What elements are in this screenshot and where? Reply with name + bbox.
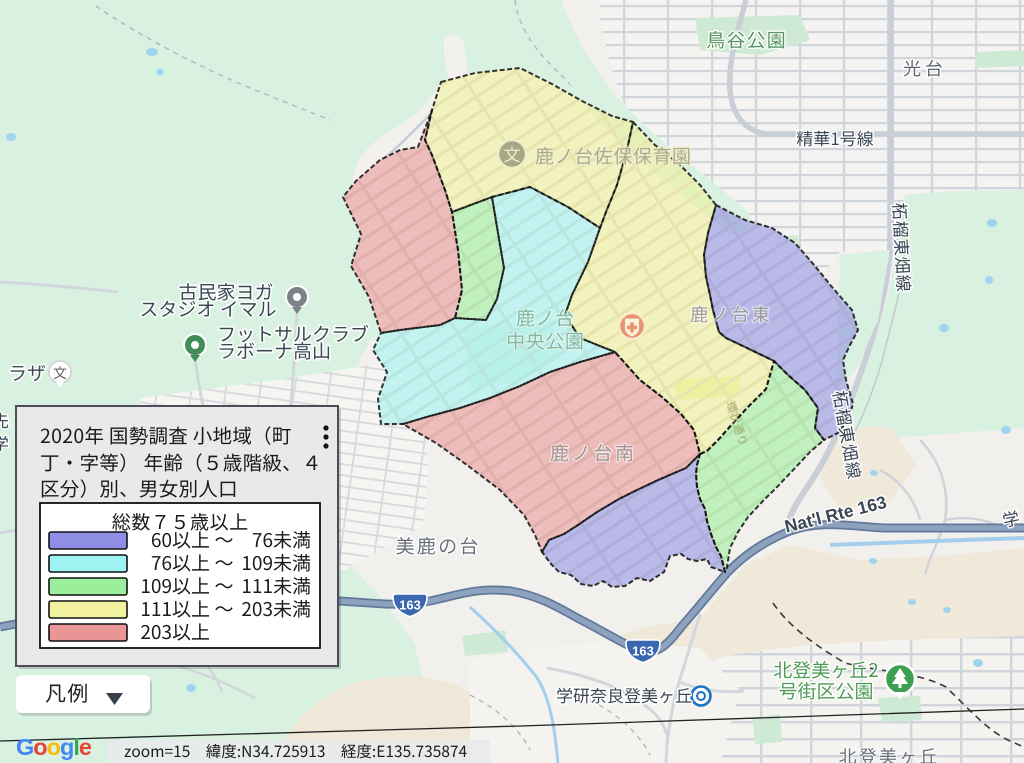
svg-text:163: 163 <box>632 644 654 659</box>
svg-text:163: 163 <box>399 598 421 613</box>
svg-text:Google: Google <box>16 734 92 760</box>
